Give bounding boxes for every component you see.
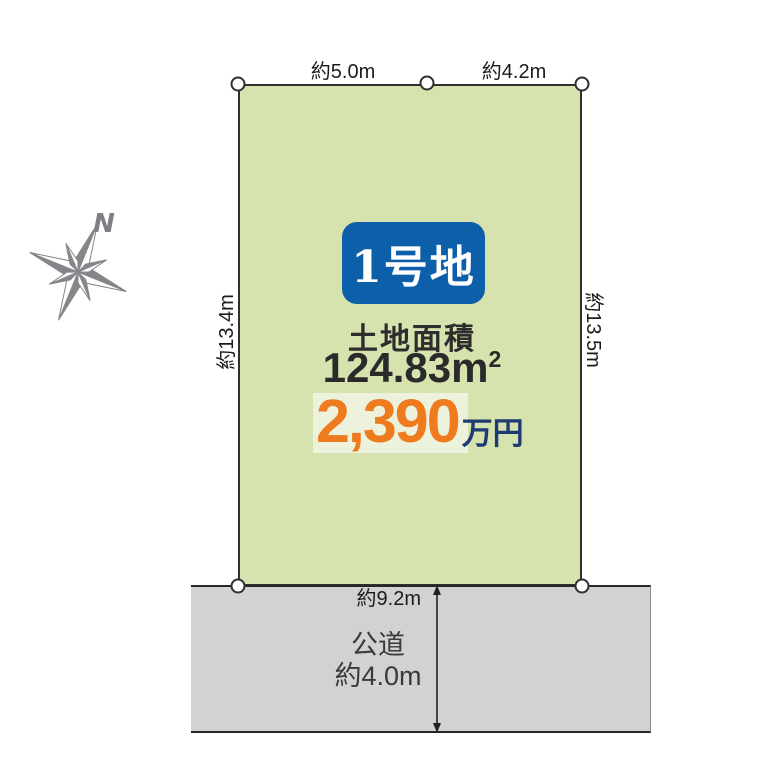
plot-number-label: 1号地 [351, 231, 476, 295]
road-width: 約4.0m [334, 661, 421, 692]
area-unit: m [451, 344, 488, 391]
area-exponent: 2 [488, 346, 501, 372]
dimension-bottom-edge: 約9.2m [357, 588, 421, 610]
road-width-arrow [429, 584, 445, 734]
dimension-top-right-edge: 約4.2m [482, 61, 546, 83]
area-value: 124.83m2 [323, 347, 502, 389]
boundary-marker-top-right [575, 77, 590, 92]
plot-number-badge: 1号地 [342, 222, 485, 304]
road-name: 公道 [334, 630, 421, 661]
dimension-right-edge: 約13.5m [582, 292, 604, 368]
compass-north-label: N [93, 209, 115, 239]
dimension-top-left-edge: 約5.0m [311, 61, 375, 83]
price-value: 2,390 [316, 392, 459, 451]
dimension-left-edge: 約13.4m [216, 294, 238, 370]
boundary-marker-bottom-left [231, 579, 246, 594]
lot-plan-diagram: N 約5.0m 約4.2m 約13.4m 約13.5m 約9.2m 1号地 土地… [0, 0, 773, 783]
boundary-marker-top-left [231, 77, 246, 92]
compass-rose-icon: N [18, 192, 138, 342]
area-number: 124.83 [323, 344, 451, 391]
price: 2,390 万円 [316, 392, 524, 451]
boundary-marker-bottom-right [575, 579, 590, 594]
road-label: 公道 約4.0m [334, 630, 421, 692]
price-unit: 万円 [462, 418, 524, 451]
boundary-marker-top-middle [420, 76, 435, 91]
